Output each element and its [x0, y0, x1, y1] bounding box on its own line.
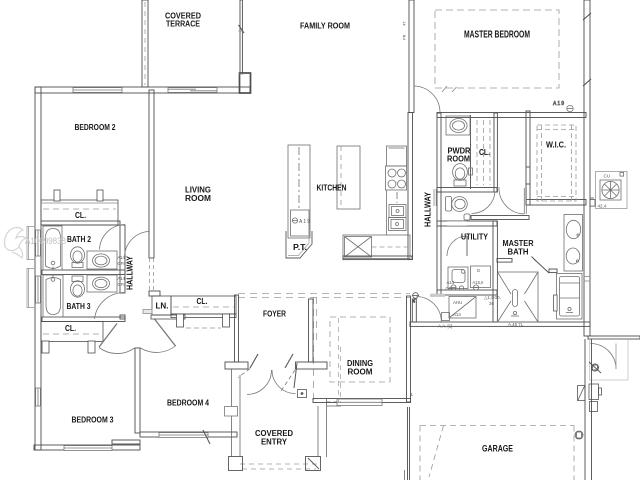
svg-text:36: 36	[489, 301, 494, 306]
svg-text:4T: 4T	[402, 21, 407, 26]
svg-text:A15,II: A15,II	[473, 280, 484, 285]
svg-text:PR: PR	[402, 34, 407, 40]
svg-text:A10699838: A10699838	[25, 235, 66, 246]
svg-text:FOYER: FOYER	[263, 309, 287, 319]
svg-text:A19: A19	[299, 219, 310, 225]
svg-text:1: 1	[411, 392, 414, 397]
svg-text:A13: A13	[447, 280, 455, 285]
svg-text:HALLWAY: HALLWAY	[125, 256, 135, 290]
svg-text:CL.: CL.	[65, 324, 76, 333]
svg-text:BATH: BATH	[508, 247, 529, 257]
svg-text:FAMILY ROOM: FAMILY ROOM	[300, 21, 350, 31]
svg-text:BEDROOM 4: BEDROOM 4	[167, 398, 209, 408]
svg-text:GFI: GFI	[446, 286, 453, 291]
svg-text:CL.: CL.	[197, 297, 208, 306]
svg-text:KITCHEN: KITCHEN	[317, 183, 347, 193]
svg-text:ROOM: ROOM	[447, 154, 470, 164]
svg-text:BEDROOM 3: BEDROOM 3	[72, 415, 114, 425]
svg-text:MASTER BEDROOM: MASTER BEDROOM	[464, 30, 530, 41]
svg-text:BEDROOM 2: BEDROOM 2	[75, 122, 116, 132]
svg-text:A.A. [1]: A.A. [1]	[438, 324, 452, 329]
svg-text:△1,⊖30,: △1,⊖30,	[484, 295, 501, 300]
svg-text:GFI: GFI	[118, 282, 125, 287]
svg-text:BATH 2: BATH 2	[67, 234, 91, 244]
svg-text:UTILITY: UTILITY	[461, 232, 488, 242]
svg-text:D: D	[477, 268, 480, 273]
svg-text:A13: A13	[453, 312, 461, 317]
svg-text:42,4: 42,4	[598, 204, 607, 209]
svg-text:CL.: CL.	[75, 211, 86, 220]
svg-text:A.45 7L: A.45 7L	[508, 322, 524, 327]
svg-text:HALLWAY: HALLWAY	[423, 192, 433, 227]
svg-text:ROOM: ROOM	[185, 193, 211, 203]
svg-text:P.T.: P.T.	[293, 243, 307, 252]
svg-text:W.I.C.: W.I.C.	[546, 140, 566, 150]
svg-text:ROOM: ROOM	[348, 367, 373, 377]
svg-text:ENTRY: ENTRY	[261, 437, 287, 447]
svg-text:AHU: AHU	[453, 300, 462, 305]
svg-text:CL.: CL.	[479, 148, 490, 157]
svg-text:BATH 3: BATH 3	[67, 301, 91, 311]
svg-text:TERRACE: TERRACE	[166, 19, 200, 29]
svg-text:GARAGE: GARAGE	[482, 444, 513, 454]
svg-text:GFI: GFI	[118, 261, 125, 266]
svg-text:A19: A19	[553, 101, 564, 107]
svg-text:CU: CU	[604, 174, 611, 179]
svg-text:LN.: LN.	[156, 302, 169, 311]
